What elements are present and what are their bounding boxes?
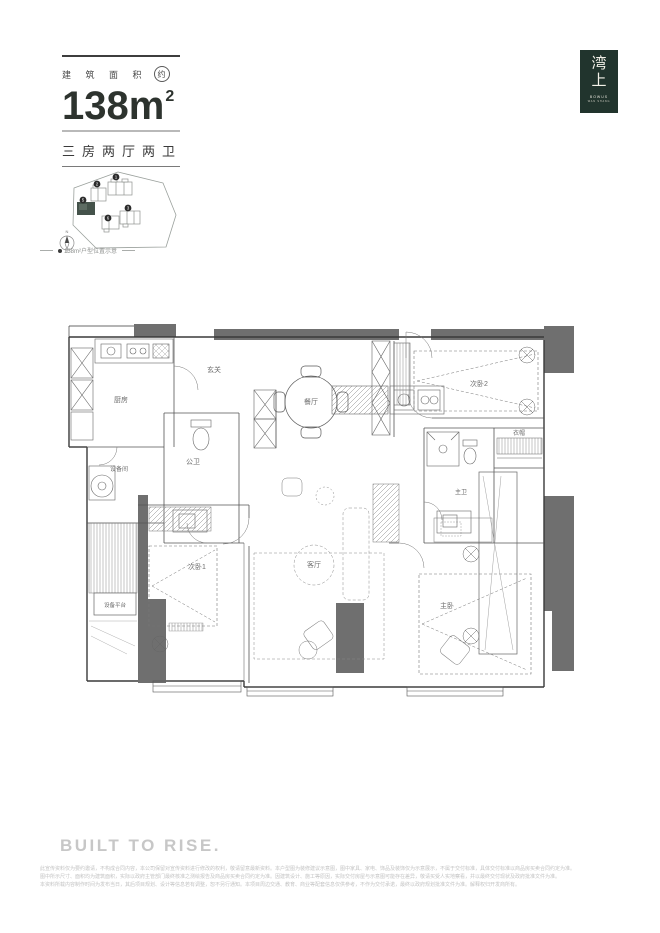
area-label-row: 建 筑 面 积 约: [62, 66, 180, 82]
label-cloak: 衣帽: [513, 429, 525, 437]
brand-logo: 湾 上 BOWUS WAN SHANG: [580, 50, 618, 113]
caption-dash-right: [122, 250, 135, 251]
caption-text: 138m²户型位置示意: [64, 246, 117, 255]
cloak-rod: [497, 438, 542, 458]
divider-mid: [62, 130, 180, 132]
logo-char-top: 湾: [591, 56, 606, 73]
kitchen-fittings: [71, 339, 173, 440]
caption-dot-icon: [58, 249, 62, 253]
label-bedroom1: 次卧1: [188, 562, 206, 571]
logo-subline-2: WAN SHANG: [588, 100, 611, 103]
approx-circle-badge: 约: [154, 66, 170, 82]
slogan-text: BUILT TO RISE.: [60, 836, 221, 856]
building-1: [108, 179, 132, 195]
area-value: 138m2: [62, 86, 180, 126]
disclaimer-line-2: 图中所示尺寸、面积均为建筑面积，实际以政府主管部门最终核准之测绘报告及商品房买卖…: [40, 874, 622, 881]
caption-dash-left: [40, 250, 53, 251]
area-number: 138m: [62, 84, 164, 128]
compass-n-label: N: [66, 229, 69, 234]
disclaimer-line-3: 本资料所载内容制作时间为发布当日，其后项目规划、设计等信息若有调整，恕不另行通知…: [40, 882, 622, 889]
floor-plan: 玄关 厨房 餐厅 公卫 设备间 次卧2 衣帽 主卫 次卧1 客厅 主卧 设备平台: [57, 306, 607, 706]
building-2: [91, 185, 106, 201]
disclaimer-line-1: 此宣传资料仅为要约邀请，不构成合同内容，本公司保留对宣传资料进行修改的权利，敬请…: [40, 866, 622, 873]
label-bedroom2: 次卧2: [470, 379, 488, 388]
site-buildings: [77, 179, 140, 232]
label-entry: 玄关: [207, 365, 221, 374]
spec-block: 建 筑 面 积 约 138m2 三房两厅两卫: [62, 55, 180, 167]
room-labels: 玄关 厨房 餐厅 公卫 设备间 次卧2 衣帽 主卫 次卧1 客厅 主卧 设备平台: [104, 365, 525, 610]
logo-subline-1: BOWUS: [590, 95, 608, 99]
label-dining: 餐厅: [304, 397, 318, 406]
building-3: [120, 211, 140, 227]
label-equipment-room: 设备间: [110, 465, 128, 473]
label-master-bath: 主卫: [455, 488, 467, 496]
site-plan-caption-row: 138m²户型位置示意: [40, 246, 220, 255]
label-master-bedroom: 主卧: [440, 601, 454, 610]
building-5-highlighted: [77, 202, 95, 215]
label-equipment-platform: 设备平台: [104, 601, 127, 609]
logo-char-bottom: 上: [591, 73, 606, 90]
area-label: 建 筑 面 积: [62, 68, 148, 81]
site-plan-diagram: 1 2 5 6 3 N: [56, 160, 201, 260]
area-superscript: 2: [165, 88, 174, 105]
divider-top: [62, 55, 180, 57]
label-living: 客厅: [307, 560, 321, 569]
disclaimer-block: 此宣传资料仅为要约邀请，不构成合同内容，本公司保留对宣传资料进行修改的权利，敬请…: [40, 866, 622, 890]
living-room-furniture: [254, 478, 399, 659]
label-guest-bath: 公卫: [186, 458, 200, 466]
master-bedroom-furniture: [419, 472, 531, 674]
equipment-platform: [89, 523, 137, 654]
layout-text: 三房两厅两卫: [62, 141, 180, 160]
site-plan-caption: 138m²户型位置示意: [58, 246, 117, 255]
entry-closet: [254, 390, 276, 448]
bay-windows: [153, 681, 503, 696]
label-kitchen: 厨房: [114, 395, 128, 404]
